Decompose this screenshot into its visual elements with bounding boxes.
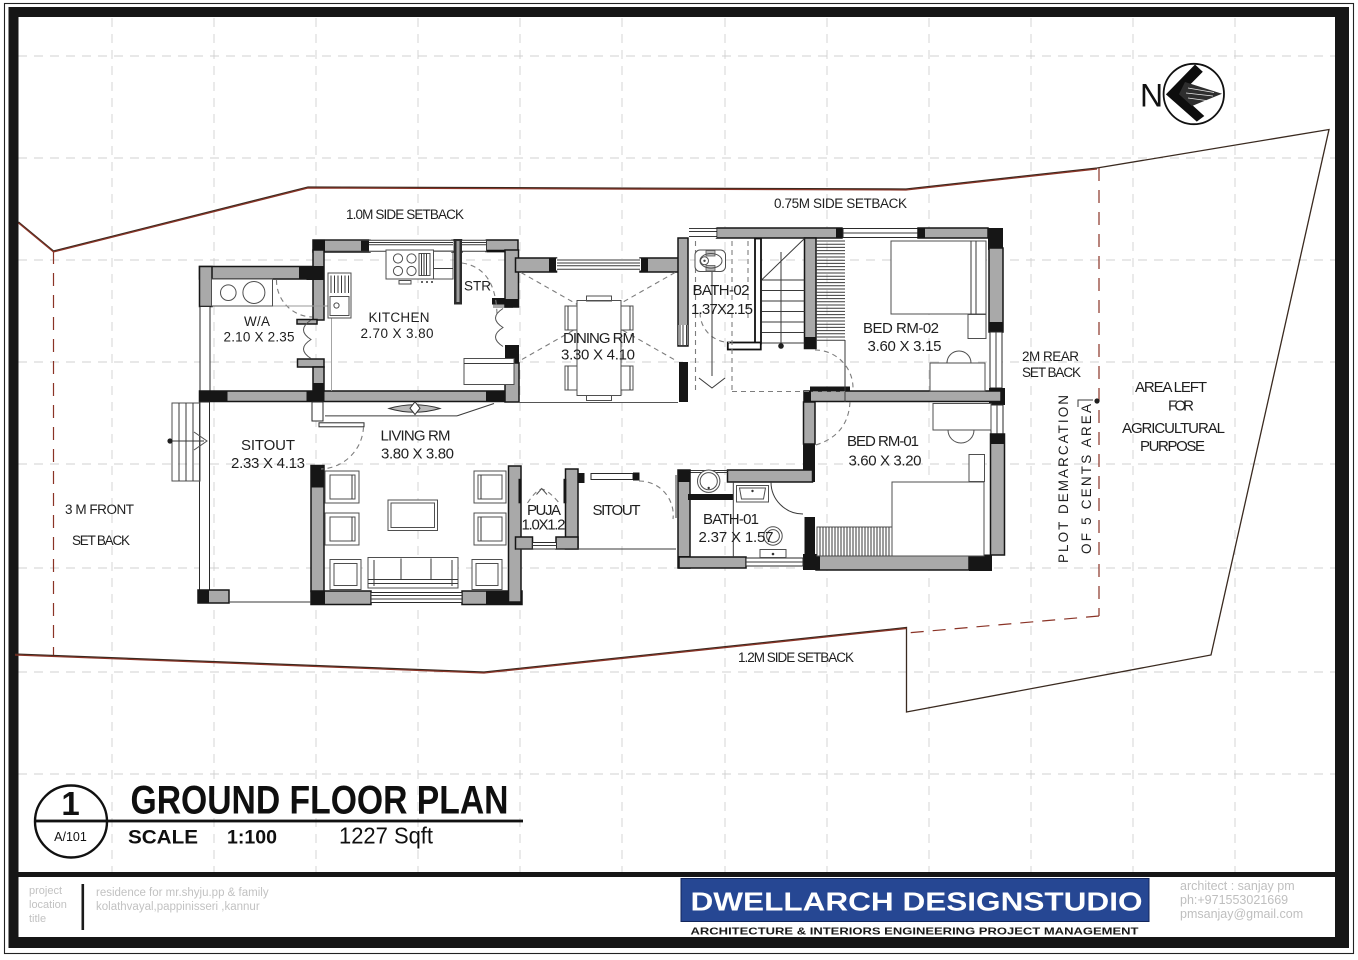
svg-text:GROUND FLOOR PLAN: GROUND FLOOR PLAN (131, 779, 509, 823)
svg-text:1.0X1.2: 1.0X1.2 (522, 517, 566, 534)
svg-text:OF 5 CENTS AREA: OF 5 CENTS AREA (1079, 404, 1094, 554)
svg-text:LIVING RM: LIVING RM (381, 428, 451, 445)
svg-text:3 M FRONT: 3 M FRONT (65, 502, 134, 517)
svg-text:BED RM-02: BED RM-02 (863, 320, 939, 337)
svg-text:3.60 X 3.20: 3.60 X 3.20 (849, 453, 922, 470)
svg-text:BATH-02: BATH-02 (693, 282, 750, 299)
svg-text:N: N (1140, 78, 1163, 114)
svg-text:W/A: W/A (244, 314, 270, 329)
svg-text:SET BACK: SET BACK (1022, 365, 1081, 380)
svg-text:architect : sanjay pm: architect : sanjay pm (1180, 879, 1295, 893)
svg-text:3.60 X 3.15: 3.60 X 3.15 (868, 338, 942, 355)
svg-text:2.33 X 4.13: 2.33 X 4.13 (231, 455, 305, 472)
svg-text:1.2M SIDE SETBACK: 1.2M SIDE SETBACK (738, 650, 854, 665)
svg-text:kolathvayal,pappinisseri ,kann: kolathvayal,pappinisseri ,kannur (96, 901, 260, 913)
svg-text:SITOUT: SITOUT (593, 502, 641, 519)
svg-text:SITOUT: SITOUT (241, 437, 295, 454)
svg-text:location: location (29, 899, 67, 911)
svg-text:title: title (29, 913, 46, 925)
svg-text:project: project (29, 885, 62, 897)
svg-text:0.75M SIDE SETBACK: 0.75M SIDE SETBACK (774, 196, 907, 211)
svg-text:PURPOSE: PURPOSE (1140, 438, 1205, 455)
svg-text:ARCHITECTURE & INTERIORS: ARCHITECTURE & INTERIORS ENGINEERING PRO… (691, 927, 1139, 938)
svg-text:ph:+971553021669: ph:+971553021669 (1180, 893, 1288, 907)
svg-text:residence for mr.shyju.pp & fa: residence for mr.shyju.pp & family (96, 887, 269, 899)
svg-text:FOR: FOR (1168, 398, 1194, 415)
svg-text:KITCHEN: KITCHEN (369, 310, 430, 325)
svg-text:AGRICULTURAL: AGRICULTURAL (1122, 420, 1225, 437)
svg-text:A/101: A/101 (54, 830, 87, 844)
svg-text:1227 Sqft: 1227 Sqft (339, 823, 434, 849)
svg-text:pmsanjay@gmail.com: pmsanjay@gmail.com (1180, 907, 1303, 921)
svg-text:1: 1 (61, 785, 79, 822)
svg-text:DWELLARCH DESIGNSTUDIO: DWELLARCH DESIGNSTUDIO (691, 887, 1143, 917)
svg-text:1.0M SIDE SETBACK: 1.0M SIDE SETBACK (346, 207, 464, 222)
svg-text:STR: STR (464, 279, 491, 294)
svg-text:1:100: 1:100 (227, 828, 277, 849)
svg-text:3.30 X 4.10: 3.30 X 4.10 (561, 347, 635, 364)
svg-text:2.37 X 1.57: 2.37 X 1.57 (699, 529, 774, 546)
svg-text:BED RM-01: BED RM-01 (847, 433, 919, 450)
svg-text:DINING RM: DINING RM (563, 330, 635, 347)
svg-text:2.70 X 3.80: 2.70 X 3.80 (361, 326, 434, 341)
svg-text:1.37X2.15: 1.37X2.15 (691, 301, 753, 318)
svg-text:2M REAR: 2M REAR (1022, 349, 1079, 364)
svg-text:SET BACK: SET BACK (72, 533, 130, 548)
svg-text:AREA LEFT: AREA LEFT (1135, 379, 1207, 396)
svg-text:3.80 X 3.80: 3.80 X 3.80 (381, 446, 454, 463)
svg-text:2.10 X 2.35: 2.10 X 2.35 (224, 330, 295, 345)
svg-text:BATH-01: BATH-01 (703, 511, 759, 528)
svg-text:SCALE: SCALE (128, 828, 198, 849)
